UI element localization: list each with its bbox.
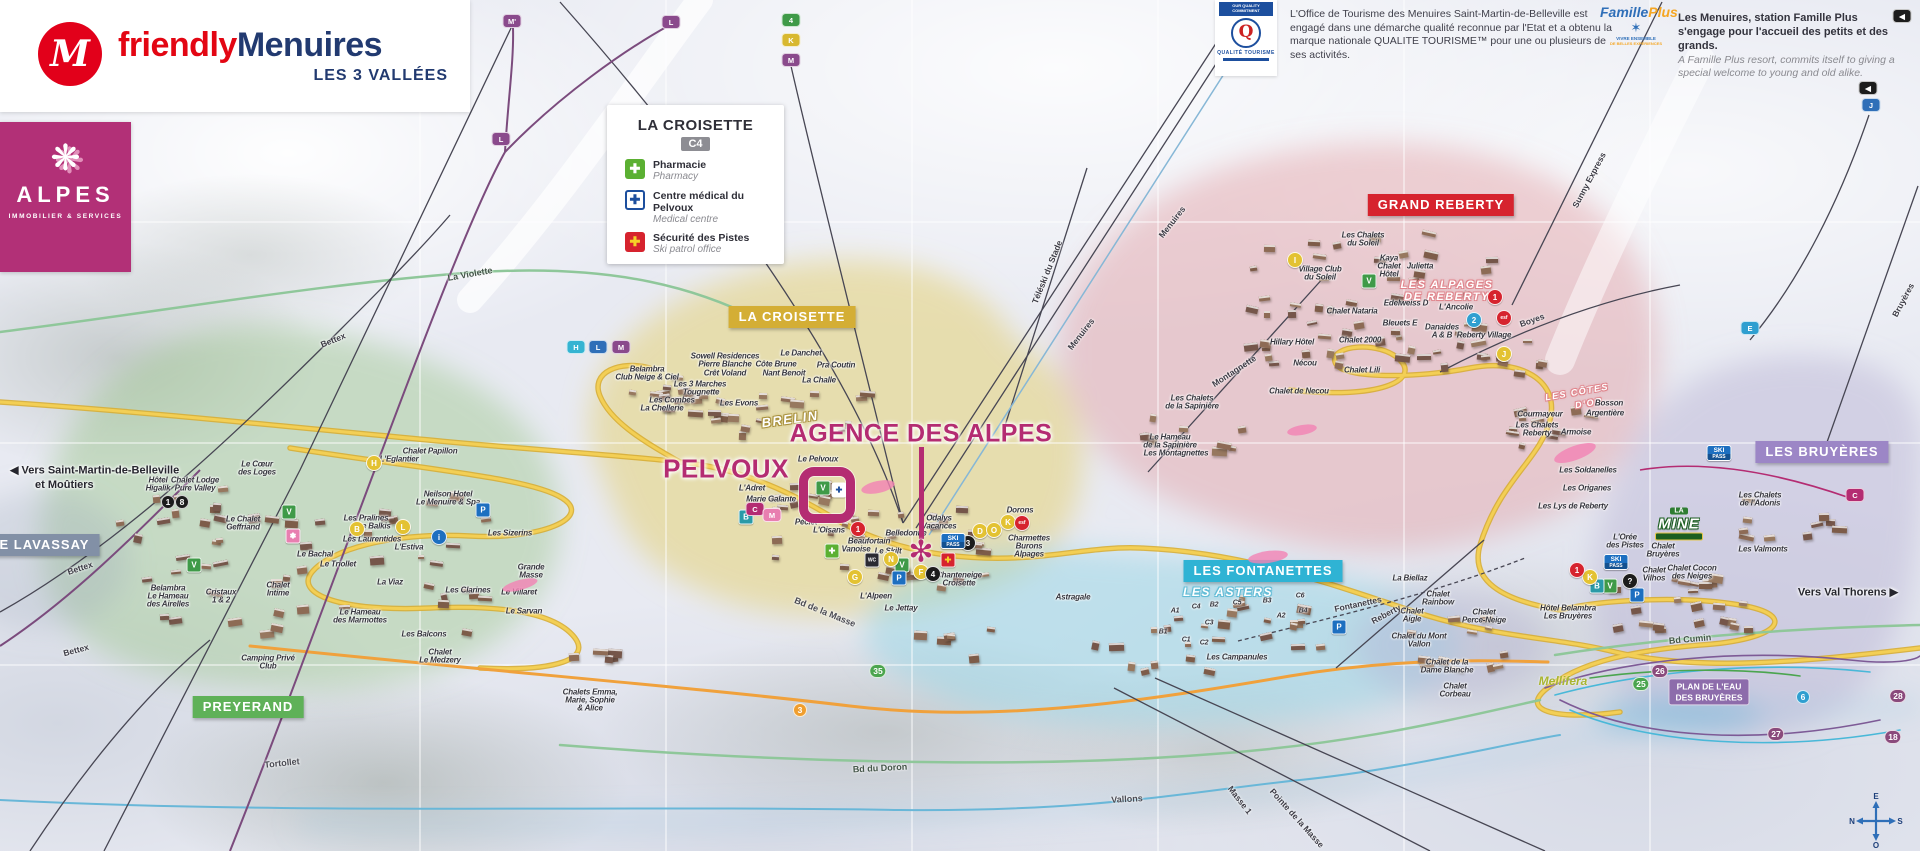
resort-map: LA CROISETTEGRAND REBERTYLES FONTANETTES… <box>0 0 1920 851</box>
map-vector-layer <box>0 0 1920 851</box>
district-zones <box>0 143 1920 824</box>
